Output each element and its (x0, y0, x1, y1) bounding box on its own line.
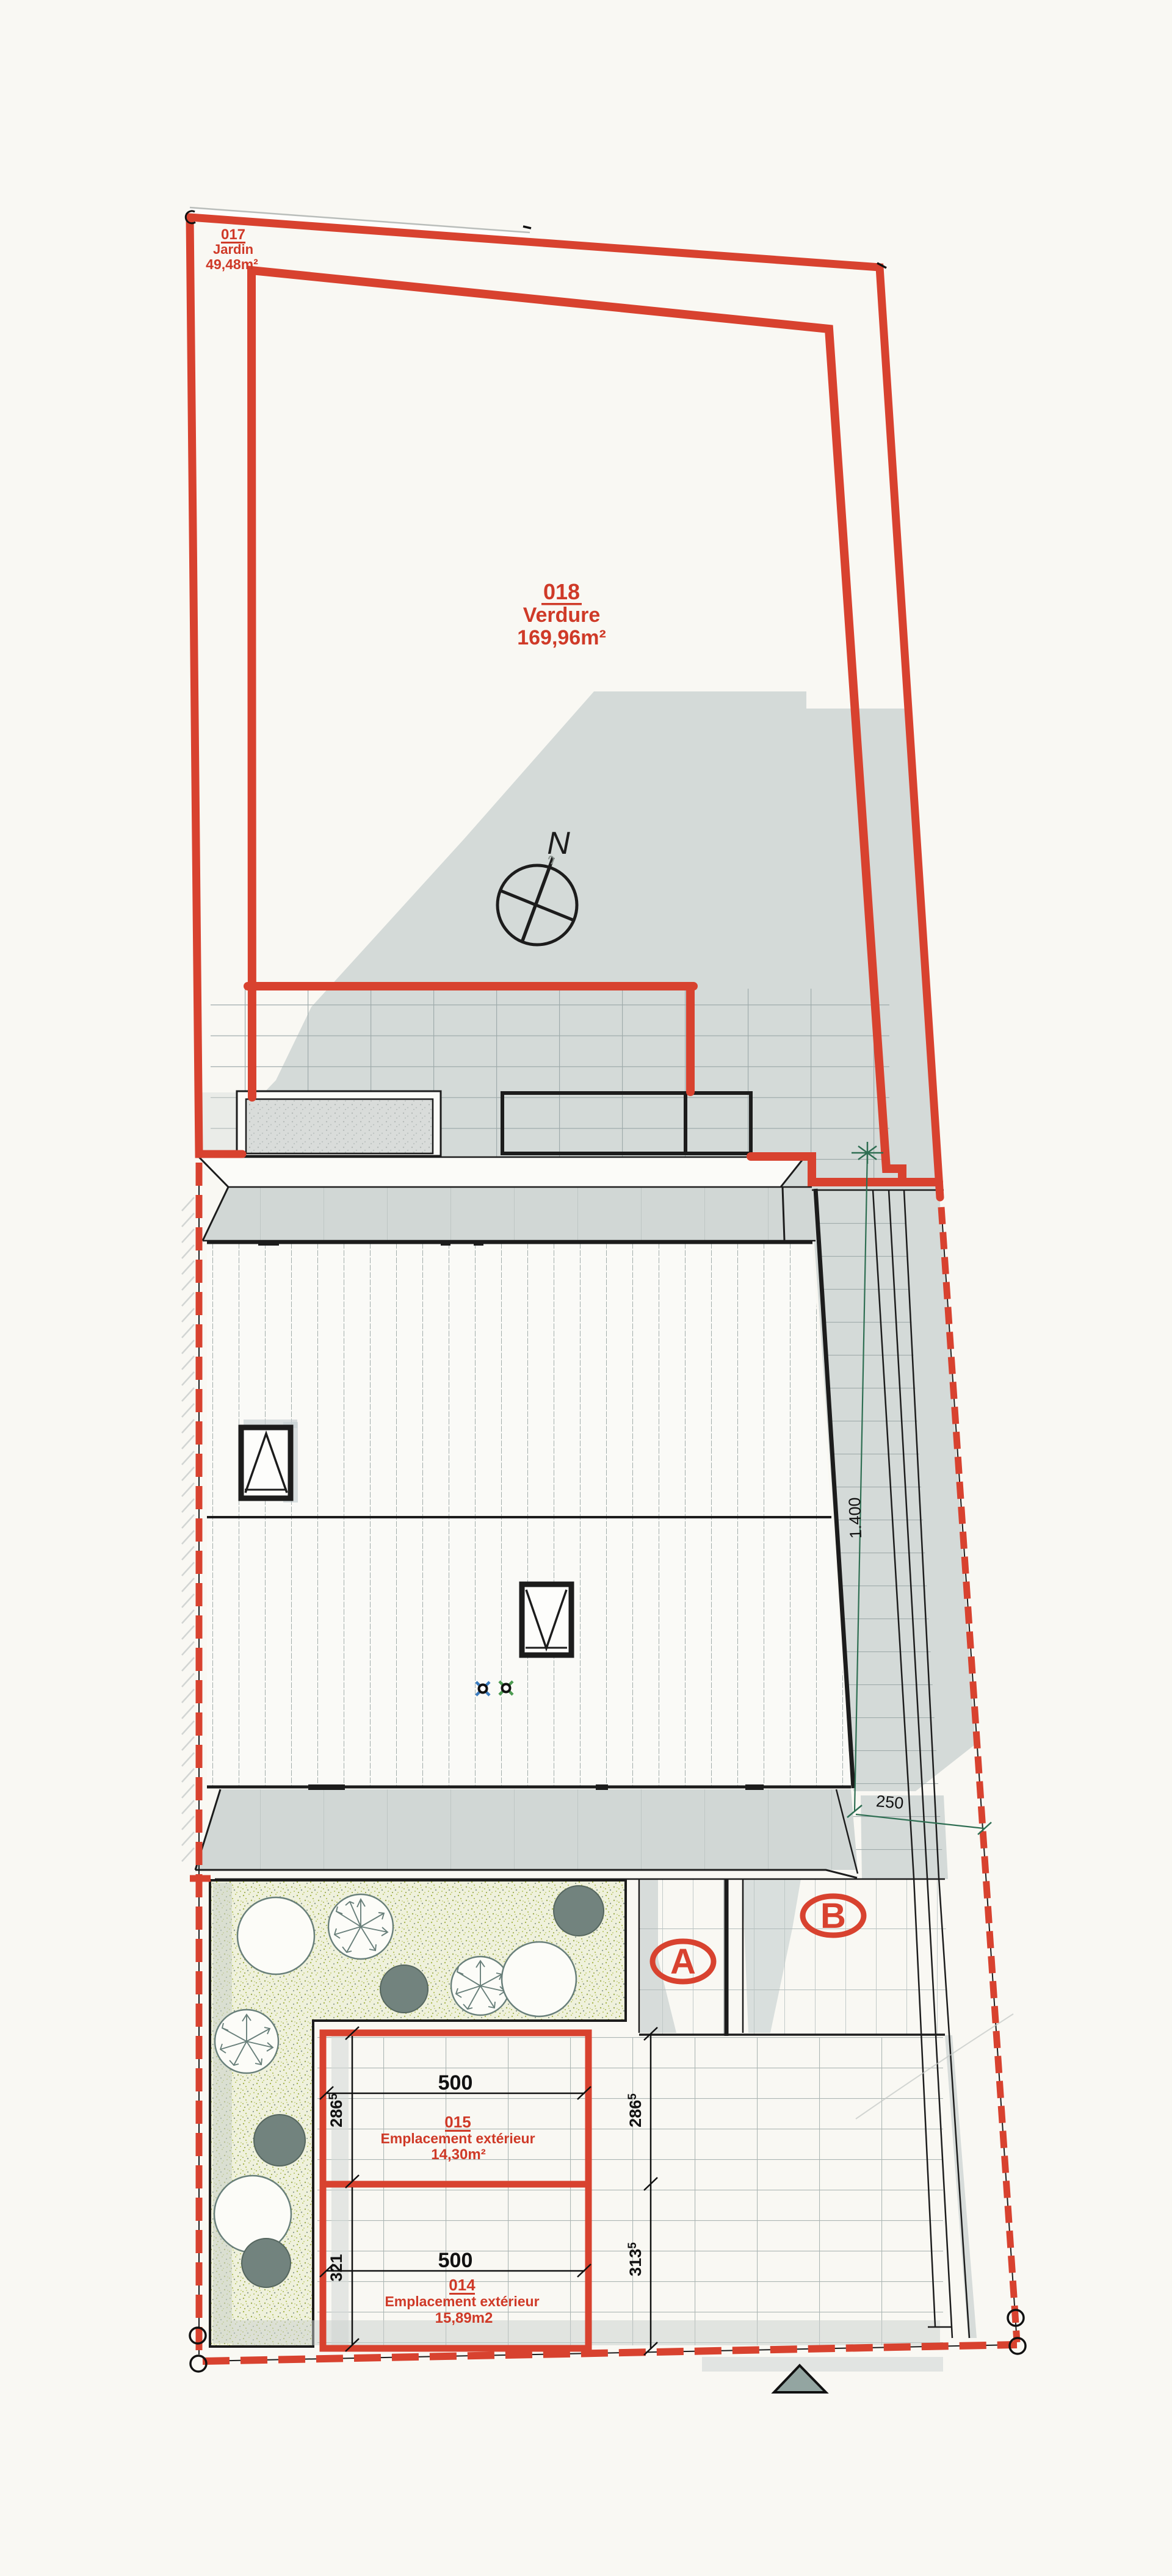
svg-text:Emplacement extérieur: Emplacement extérieur (385, 2293, 539, 2309)
svg-text:018: 018 (543, 579, 580, 604)
svg-text:1.400: 1.400 (845, 1497, 865, 1539)
svg-text:Emplacement extérieur: Emplacement extérieur (380, 2130, 535, 2146)
svg-text:015: 015 (444, 2113, 471, 2131)
svg-text:169,96m²: 169,96m² (517, 626, 606, 649)
svg-text:017: 017 (221, 226, 245, 243)
svg-text:B: B (820, 1896, 846, 1936)
svg-text:Verdure: Verdure (523, 604, 601, 627)
svg-text:A: A (670, 1942, 696, 1982)
svg-text:250: 250 (875, 1792, 905, 1813)
svg-text:500: 500 (438, 2071, 473, 2094)
svg-text:N: N (547, 826, 570, 861)
svg-text:Jardin: Jardin (213, 242, 253, 257)
svg-text:500: 500 (438, 2249, 473, 2272)
svg-text:321: 321 (327, 2254, 345, 2281)
svg-text:14,30m²: 14,30m² (431, 2146, 485, 2163)
svg-text:014: 014 (449, 2276, 476, 2294)
svg-text:49,48m²: 49,48m² (206, 256, 258, 272)
svg-text:15,89m2: 15,89m2 (435, 2310, 493, 2326)
